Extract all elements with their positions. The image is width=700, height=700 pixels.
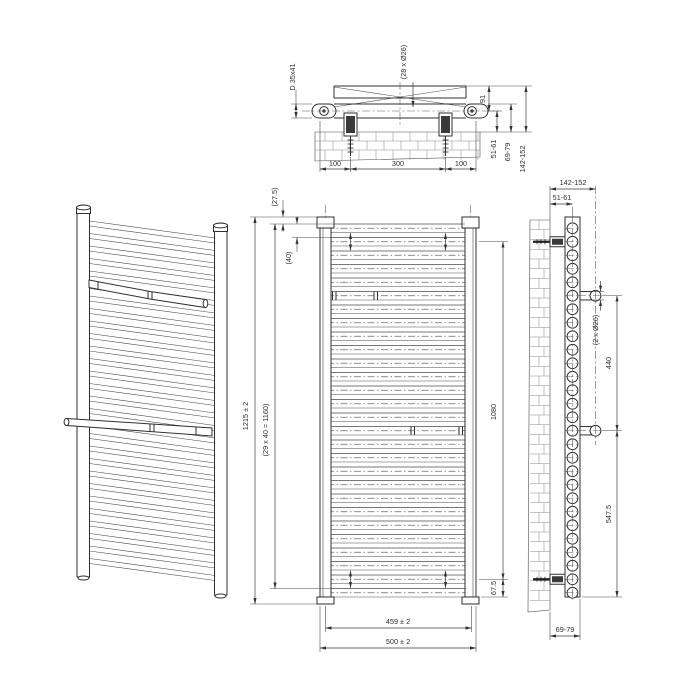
iso-left-cap (77, 205, 91, 210)
drawing-line (90, 334, 216, 351)
top-dim-142-152: 142-152 (518, 146, 527, 173)
front-view (250, 200, 508, 652)
drawing-line (90, 234, 216, 251)
drawing-line (90, 376, 216, 393)
drawing-line (90, 239, 216, 256)
top-dim-100-left: 100 (329, 159, 341, 168)
side-view (528, 186, 622, 640)
drawing-line (90, 359, 216, 376)
drawing-line (90, 221, 216, 238)
drawing-line (90, 534, 216, 551)
wall-outline (315, 132, 480, 161)
drawing-line (90, 339, 216, 356)
drawing-line (90, 559, 216, 576)
iso-left-foot (78, 576, 89, 580)
top-dim-69-79: 69-79 (503, 143, 512, 162)
drawing-line (90, 501, 216, 518)
iso-towel-bar-tip (203, 299, 208, 307)
wall-bracket-body (552, 576, 563, 582)
side-dim-51-61: 51-61 (553, 193, 572, 202)
side-dim-547-5: 547.5 (604, 505, 613, 523)
drawing-line (90, 434, 216, 451)
right-foot (462, 597, 479, 604)
drawing-line (90, 259, 216, 276)
wall-bracket-body (441, 116, 450, 133)
side-dim-142-152: 142-152 (560, 178, 587, 187)
top-dim-51-61: 51-61 (489, 140, 498, 159)
left-column-cap (317, 217, 334, 228)
drawing-line (90, 401, 216, 418)
drawing-line (90, 496, 216, 513)
front-dim-67-5: 67.5 (489, 581, 498, 595)
front-dim-40: (40) (284, 252, 293, 265)
isometric-view (64, 205, 227, 598)
front-dim-1080: 1080 (489, 404, 498, 420)
drawing-line (90, 321, 216, 338)
left-column (320, 228, 331, 597)
drawing-line (90, 246, 216, 263)
drawing-line (90, 451, 216, 468)
top-dim-91: 91 (478, 95, 487, 103)
drawing-line (90, 371, 216, 388)
radiator-installation-drawing: D 35x41 (28 x Ø26) 91 51-61 69-79 142-15… (0, 0, 700, 700)
drawing-line (90, 446, 216, 463)
wall-bracket-body (346, 116, 355, 133)
left-foot (317, 597, 334, 604)
drawing-line (90, 351, 216, 368)
side-dim-440: 440 (604, 357, 613, 369)
drawing-line (90, 521, 216, 538)
drawing-line (90, 471, 216, 488)
top-dim-100-right: 100 (455, 159, 467, 168)
drawing-line (90, 489, 216, 506)
front-dim-width: 500 ± 2 (386, 637, 410, 646)
iso-right-foot (215, 594, 226, 598)
technical-drawing-page: D 35x41 (28 x Ø26) 91 51-61 69-79 142-15… (0, 0, 700, 700)
top-tube-count-label: (28 x Ø26) (399, 45, 408, 79)
drawing-line (90, 364, 216, 381)
drawing-line (90, 484, 216, 501)
drawing-line (90, 389, 216, 406)
drawing-line (90, 251, 216, 268)
drawing-line (90, 384, 216, 401)
drawing-line (90, 539, 216, 556)
drawing-line (90, 464, 216, 481)
right-column (465, 228, 476, 597)
iso-right-cap (214, 223, 228, 228)
drawing-line (90, 546, 216, 563)
drawing-line (90, 439, 216, 456)
iso-right-column (215, 230, 228, 595)
right-column-cap (462, 217, 479, 228)
top-profile-label: D 35x41 (288, 63, 297, 90)
side-towel-bar-label: (2 x Ø26) (591, 315, 600, 345)
side-dim-69-79: 69-79 (556, 625, 575, 634)
front-dim-axis-width: 459 ± 2 (386, 617, 410, 626)
drawing-line (90, 526, 216, 543)
drawing-line (90, 326, 216, 343)
front-dim-pitch-total: (29 x 40 = 1160) (261, 404, 270, 457)
drawing-line (90, 396, 216, 413)
drawing-line (90, 509, 216, 526)
front-dim-27-5: (27.5) (270, 187, 279, 206)
wall-bracket-body (552, 239, 563, 245)
drawing-line (90, 226, 216, 243)
front-dim-height: 1215 ± 2 (241, 402, 250, 430)
drawing-line (90, 309, 216, 326)
drawing-line (90, 551, 216, 568)
drawing-line (90, 459, 216, 476)
iso-towel-bar-cap (64, 418, 69, 425)
drawing-line (90, 564, 216, 581)
drawing-line (90, 514, 216, 531)
iso-left-column (77, 212, 90, 577)
drawing-line (90, 314, 216, 331)
top-dim-300: 300 (392, 159, 404, 168)
drawing-line (90, 476, 216, 493)
drawing-line (90, 346, 216, 363)
drawing-line (90, 264, 216, 281)
